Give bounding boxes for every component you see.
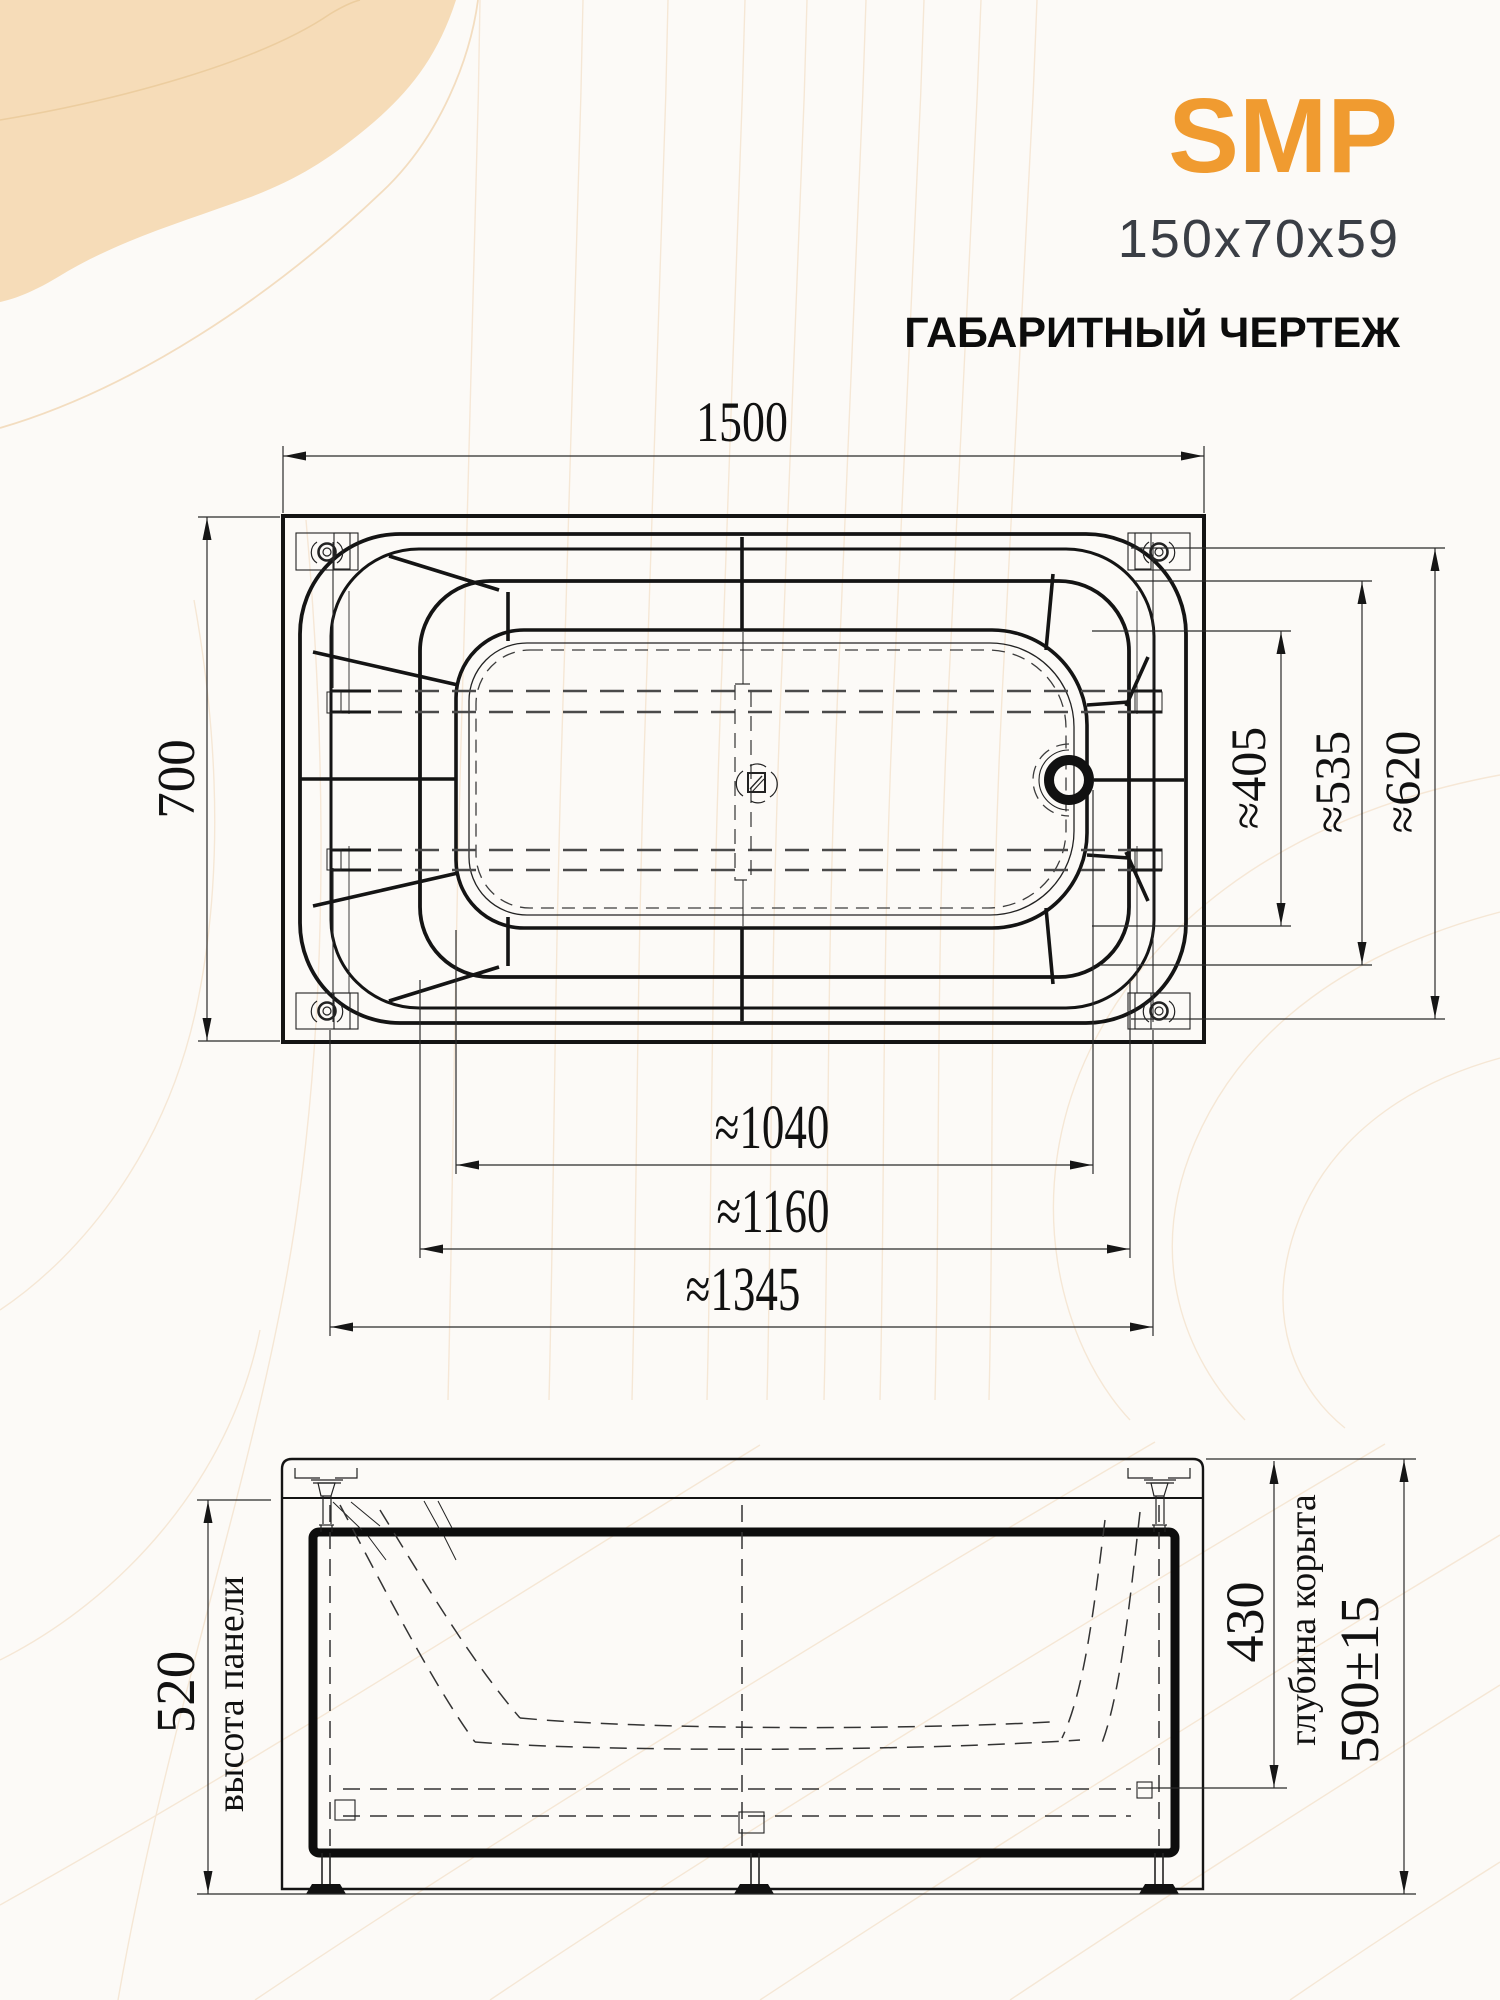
svg-text:590±15: 590±15 <box>1329 1596 1390 1764</box>
svg-text:700: 700 <box>148 739 206 819</box>
svg-text:≈535: ≈535 <box>1304 731 1360 833</box>
svg-text:≈405: ≈405 <box>1220 727 1276 829</box>
svg-text:≈1040: ≈1040 <box>715 1093 830 1162</box>
svg-text:≈620: ≈620 <box>1374 731 1430 833</box>
svg-text:1500: 1500 <box>696 391 788 454</box>
svg-text:430: 430 <box>1215 1582 1275 1663</box>
svg-text:520: 520 <box>145 1651 206 1734</box>
svg-text:глубина корыта: глубина корыта <box>1282 1494 1324 1746</box>
svg-text:SMP: SMP <box>1168 77 1398 195</box>
svg-text:150x70x59: 150x70x59 <box>1118 209 1400 269</box>
svg-text:≈1160: ≈1160 <box>716 1177 829 1246</box>
svg-text:высота панели: высота панели <box>210 1576 252 1812</box>
svg-text:ГАБАРИТНЫЙ ЧЕРТЕЖ: ГАБАРИТНЫЙ ЧЕРТЕЖ <box>904 308 1401 357</box>
svg-text:≈1345: ≈1345 <box>686 1255 801 1324</box>
